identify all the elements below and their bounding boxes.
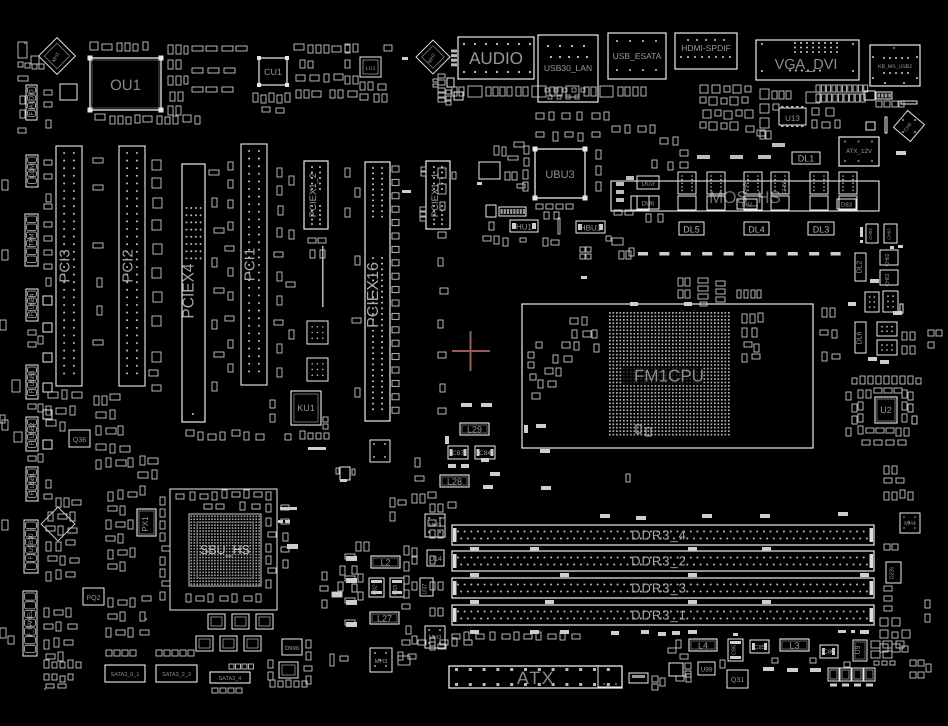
- svg-text:C87: C87: [452, 450, 464, 457]
- svg-text:CH65: CH65: [782, 180, 788, 194]
- svg-text:ATX: ATX: [517, 668, 555, 688]
- svg-text:DL6: DL6: [857, 331, 864, 344]
- svg-text:U99: U99: [701, 666, 713, 673]
- svg-text:USB_ESATA: USB_ESATA: [613, 51, 662, 61]
- svg-text:DDR3_2: DDR3_2: [631, 553, 687, 568]
- svg-text:CU1: CU1: [264, 67, 282, 77]
- svg-text:Q36: Q36: [73, 437, 86, 444]
- svg-text:DDR3_3: DDR3_3: [631, 580, 687, 595]
- svg-text:DDR3_1: DDR3_1: [631, 607, 687, 622]
- svg-text:USB30_LAN: USB30_LAN: [544, 63, 592, 73]
- svg-text:DL1: DL1: [798, 153, 815, 163]
- svg-text:CH64: CH64: [743, 180, 749, 194]
- svg-text:U9: U9: [855, 645, 862, 654]
- svg-text:C80: C80: [823, 649, 835, 655]
- svg-text:DL4: DL4: [748, 224, 765, 234]
- svg-text:AUDIO: AUDIO: [469, 49, 523, 68]
- svg-text:DU3: DU3: [641, 180, 654, 187]
- svg-text:SBU_HS: SBU_HS: [200, 543, 250, 557]
- svg-text:SATA3_2_3: SATA3_2_3: [162, 672, 191, 678]
- svg-text:MH4: MH4: [904, 521, 916, 527]
- svg-text:LU1: LU1: [365, 66, 375, 72]
- svg-text:HDMI-SPDIF: HDMI-SPDIF: [681, 43, 731, 53]
- svg-text:COM: COM: [30, 164, 36, 178]
- svg-text:PCI3: PCI3: [57, 249, 74, 282]
- svg-text:FM1CPU: FM1CPU: [634, 366, 704, 385]
- svg-text:D83: D83: [841, 202, 853, 208]
- svg-text:OU1: OU1: [110, 77, 141, 94]
- svg-text:C85: C85: [754, 645, 766, 651]
- svg-text:F_PANEL: F_PANEL: [28, 610, 34, 637]
- svg-text:PCIEX4: PCIEX4: [181, 263, 198, 319]
- svg-text:F_USB2: F_USB2: [30, 422, 36, 445]
- svg-text:PCIEX16: PCIEX16: [365, 262, 382, 328]
- svg-text:ATX_12V: ATX_12V: [846, 148, 873, 155]
- svg-text:L27: L27: [377, 613, 392, 623]
- svg-text:CH03: CH03: [868, 228, 873, 240]
- svg-text:U13: U13: [785, 114, 800, 123]
- svg-text:KU1: KU1: [297, 403, 315, 413]
- svg-text:CH02: CH02: [887, 228, 892, 240]
- svg-text:PCIEX1_2: PCIEX1_2: [308, 173, 319, 217]
- svg-text:HBU1: HBU1: [580, 223, 602, 232]
- svg-text:L28: L28: [447, 476, 462, 486]
- svg-text:L4: L4: [698, 640, 708, 650]
- svg-text:L3: L3: [789, 640, 799, 650]
- svg-text:F_USB4: F_USB4: [30, 293, 36, 316]
- svg-text:Q31: Q31: [731, 677, 744, 684]
- svg-text:C84: C84: [479, 450, 491, 457]
- svg-text:SATA3_0_1: SATA3_0_1: [111, 672, 140, 678]
- svg-text:DL5: DL5: [683, 224, 700, 234]
- svg-text:F_AUDIO: F_AUDIO: [30, 89, 36, 115]
- svg-text:CH62: CH62: [885, 253, 891, 266]
- svg-text:DDR3_4: DDR3_4: [631, 527, 687, 542]
- svg-text:D82: D82: [741, 202, 753, 208]
- svg-text:C83: C83: [393, 585, 399, 595]
- svg-text:D226: D226: [890, 567, 896, 579]
- svg-text:F_USB3: F_USB3: [30, 370, 36, 393]
- svg-text:C86: C86: [732, 645, 738, 655]
- svg-text:PQ2: PQ2: [86, 595, 100, 602]
- svg-text:DL3: DL3: [813, 224, 830, 234]
- svg-text:C82: C82: [373, 585, 379, 595]
- svg-text:TPM: TPM: [30, 234, 36, 247]
- svg-text:L2: L2: [380, 557, 390, 567]
- svg-text:L29: L29: [467, 424, 482, 434]
- svg-text:KB_MS_USB2: KB_MS_USB2: [878, 64, 912, 70]
- svg-text:DL2: DL2: [857, 260, 864, 273]
- svg-text:PCI2: PCI2: [120, 249, 137, 282]
- svg-text:PCIEX1_1: PCIEX1_1: [430, 173, 441, 217]
- svg-text:HU1: HU1: [516, 222, 533, 231]
- svg-text:PX1: PX1: [141, 516, 150, 532]
- svg-text:DU6: DU6: [641, 200, 654, 207]
- svg-text:SATA3_4: SATA3_4: [219, 676, 242, 682]
- svg-text:CH63: CH63: [885, 273, 891, 286]
- svg-text:U37: U37: [423, 583, 429, 595]
- svg-text:VGA_DVI: VGA_DVI: [775, 57, 838, 73]
- svg-text:PCI1: PCI1: [242, 248, 259, 281]
- svg-text:MH3: MH3: [375, 659, 388, 665]
- svg-text:D996: D996: [285, 646, 300, 652]
- svg-text:F_USB1: F_USB1: [30, 472, 36, 495]
- svg-text:F_USB30: F_USB30: [29, 533, 35, 560]
- svg-text:U2: U2: [880, 405, 892, 415]
- svg-text:UBU3: UBU3: [545, 169, 574, 181]
- svg-text:U14: U14: [429, 556, 442, 563]
